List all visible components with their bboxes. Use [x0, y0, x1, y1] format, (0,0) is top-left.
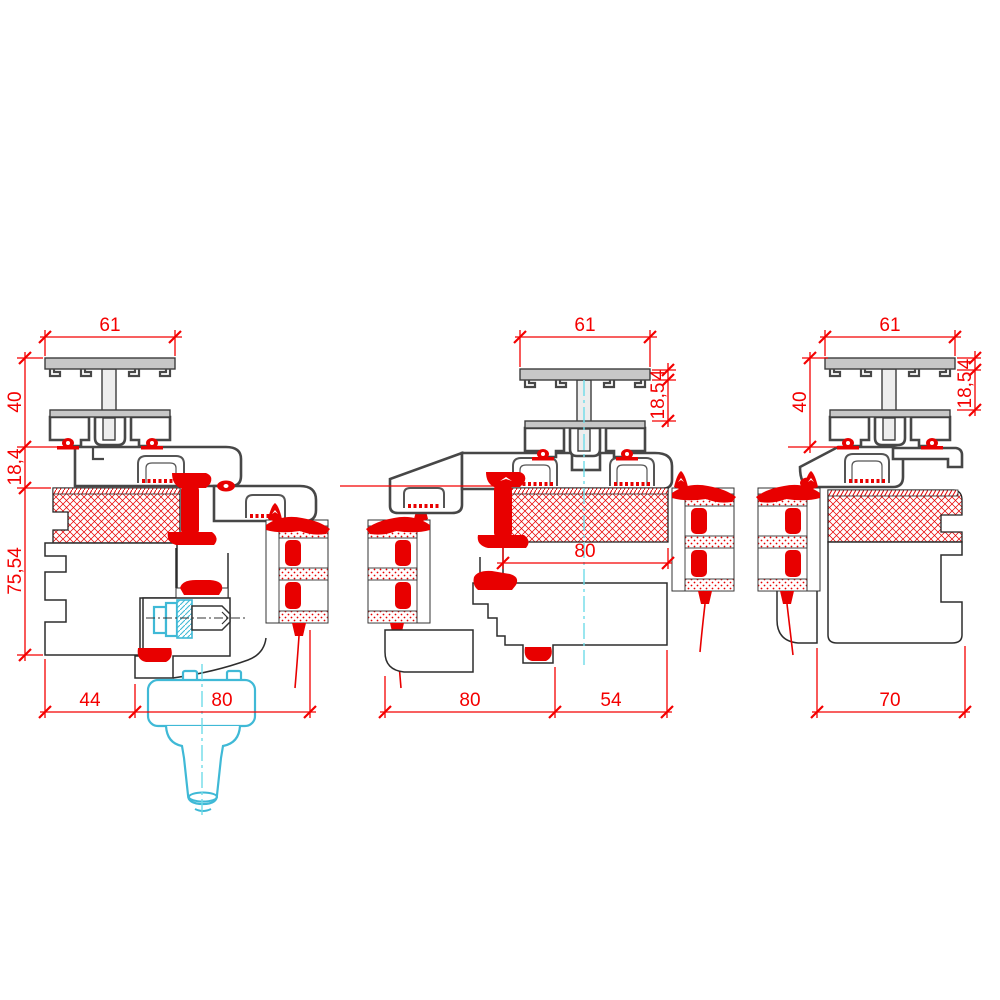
dim-label-left-height-profile: 40 — [5, 391, 26, 412]
insulation-block — [828, 490, 962, 542]
glazing-unit — [266, 503, 330, 636]
glazing-unit — [756, 471, 820, 604]
cover-profile-assembly — [45, 358, 175, 450]
dimension-middle-cap: 4 18,5 — [648, 363, 676, 427]
dim-label-middle-width-glass: 80 — [574, 541, 595, 562]
window-handle — [148, 664, 255, 816]
section-left-detail: 61 40 18,4 75,54 44 80 — [5, 315, 430, 816]
cad-drawing: 61 40 18,4 75,54 44 80 — [0, 0, 1000, 1000]
dimension-right-width-top: 61 — [819, 315, 961, 356]
glazing-gasket — [172, 473, 211, 488]
section-right-detail: 61 40 4 18,5 70 — [756, 315, 981, 718]
dim-label-middle-width-overlap: 54 — [600, 690, 622, 711]
glazing-gasket — [486, 472, 525, 487]
insulation-block — [53, 488, 180, 543]
dim-label-middle-width-top: 61 — [574, 315, 595, 336]
dim-label-left-width-top: 61 — [99, 315, 120, 336]
dim-label-right-height-profile: 40 — [790, 391, 811, 412]
dim-label-right-thickness-cap: 4 — [955, 358, 976, 369]
section-middle-detail: 61 4 18,5 80 80 54 — [340, 315, 736, 718]
insulation-block — [503, 488, 668, 542]
dimension-right-bottom: 70 — [811, 646, 971, 718]
glazing-unit — [672, 471, 736, 604]
glazing-unit — [366, 503, 430, 636]
dimension-left-width-top: 61 — [39, 315, 182, 356]
dim-label-middle-thickness-cap: 4 — [648, 369, 669, 380]
dim-label-left-width-sash: 80 — [211, 690, 232, 711]
dim-label-left-height-frame: 75,54 — [5, 547, 26, 595]
dim-label-middle-width-sash: 80 — [459, 690, 480, 711]
cover-profile-assembly — [825, 358, 955, 450]
sash-foot — [385, 630, 473, 672]
cad-page: 61 40 18,4 75,54 44 80 — [0, 0, 1000, 1000]
dimension-right-cap: 4 18,5 — [955, 351, 981, 416]
lock-mechanism — [135, 598, 266, 678]
dim-label-left-width-offset: 44 — [79, 690, 101, 711]
dim-label-right-width-top: 61 — [879, 315, 900, 336]
sash-block — [473, 583, 667, 663]
frame-block — [828, 542, 962, 643]
dim-label-middle-height-cap: 18,5 — [648, 383, 669, 420]
cover-profile-assembly — [520, 369, 650, 461]
dim-label-right-height-cap: 18,5 — [955, 372, 976, 409]
dim-label-left-height-gap: 18,4 — [5, 448, 26, 485]
dim-label-right-width-frame: 70 — [879, 690, 900, 711]
dimension-middle-width-top: 61 — [514, 315, 657, 367]
